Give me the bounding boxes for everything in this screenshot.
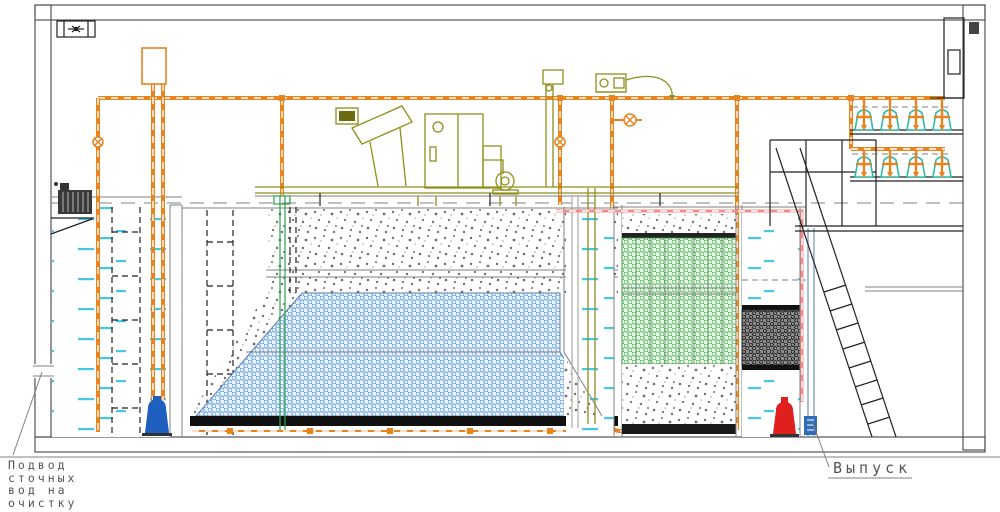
control-cabinet <box>425 114 501 188</box>
aeration-grid <box>190 416 618 426</box>
floating-media-layer <box>268 208 618 293</box>
inlet-label: Подвод сточных вод на очистку <box>8 459 77 509</box>
blower-icon <box>855 100 951 178</box>
inlet-label-line: вод на <box>8 484 77 497</box>
aeration-tank <box>182 196 618 435</box>
door-frame <box>930 18 979 98</box>
partition-wall <box>170 205 182 437</box>
drawing-canvas <box>0 0 1000 512</box>
aeration-grid <box>622 424 736 434</box>
inlet-label-line: Подвод <box>8 459 77 472</box>
transfer-channel <box>564 188 614 432</box>
fan-icon <box>57 21 95 37</box>
support-media-layer <box>622 364 736 424</box>
treatment-plant-section-drawing: Подвод сточных вод на очистку Выпуск <box>0 0 1000 512</box>
dark-media-block <box>742 310 800 365</box>
inlet-label-line: очистку <box>8 497 77 510</box>
screen-unit <box>336 106 518 206</box>
pipe-header-box <box>142 48 166 84</box>
outlet-label: Выпуск <box>833 459 911 477</box>
